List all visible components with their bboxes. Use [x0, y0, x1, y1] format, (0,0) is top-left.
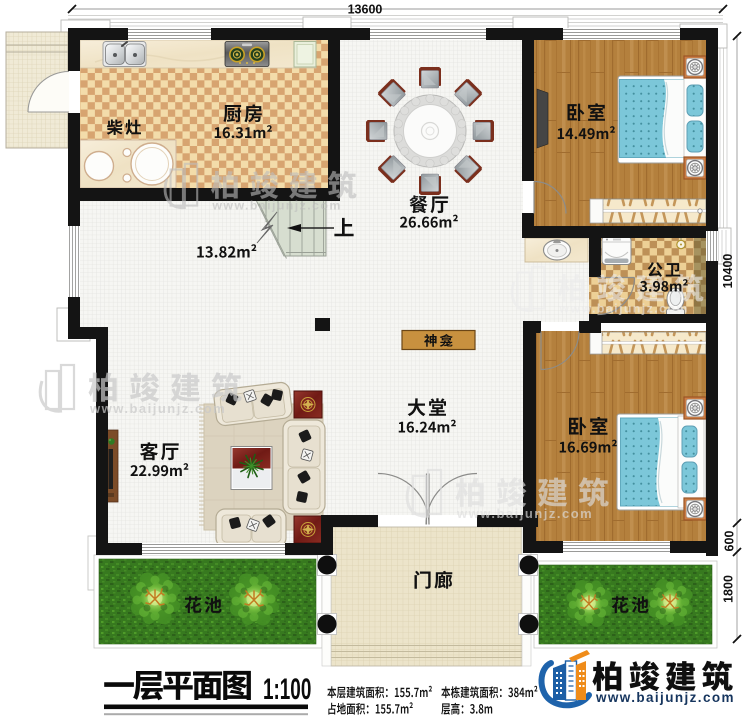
svg-text:600: 600	[722, 531, 736, 552]
svg-text:1:100: 1:100	[263, 673, 311, 707]
svg-text:10400: 10400	[721, 254, 735, 289]
svg-text:www.baijunjz.com: www.baijunjz.com	[595, 690, 735, 705]
svg-text:13600: 13600	[348, 3, 383, 17]
svg-text:1800: 1800	[721, 575, 735, 603]
